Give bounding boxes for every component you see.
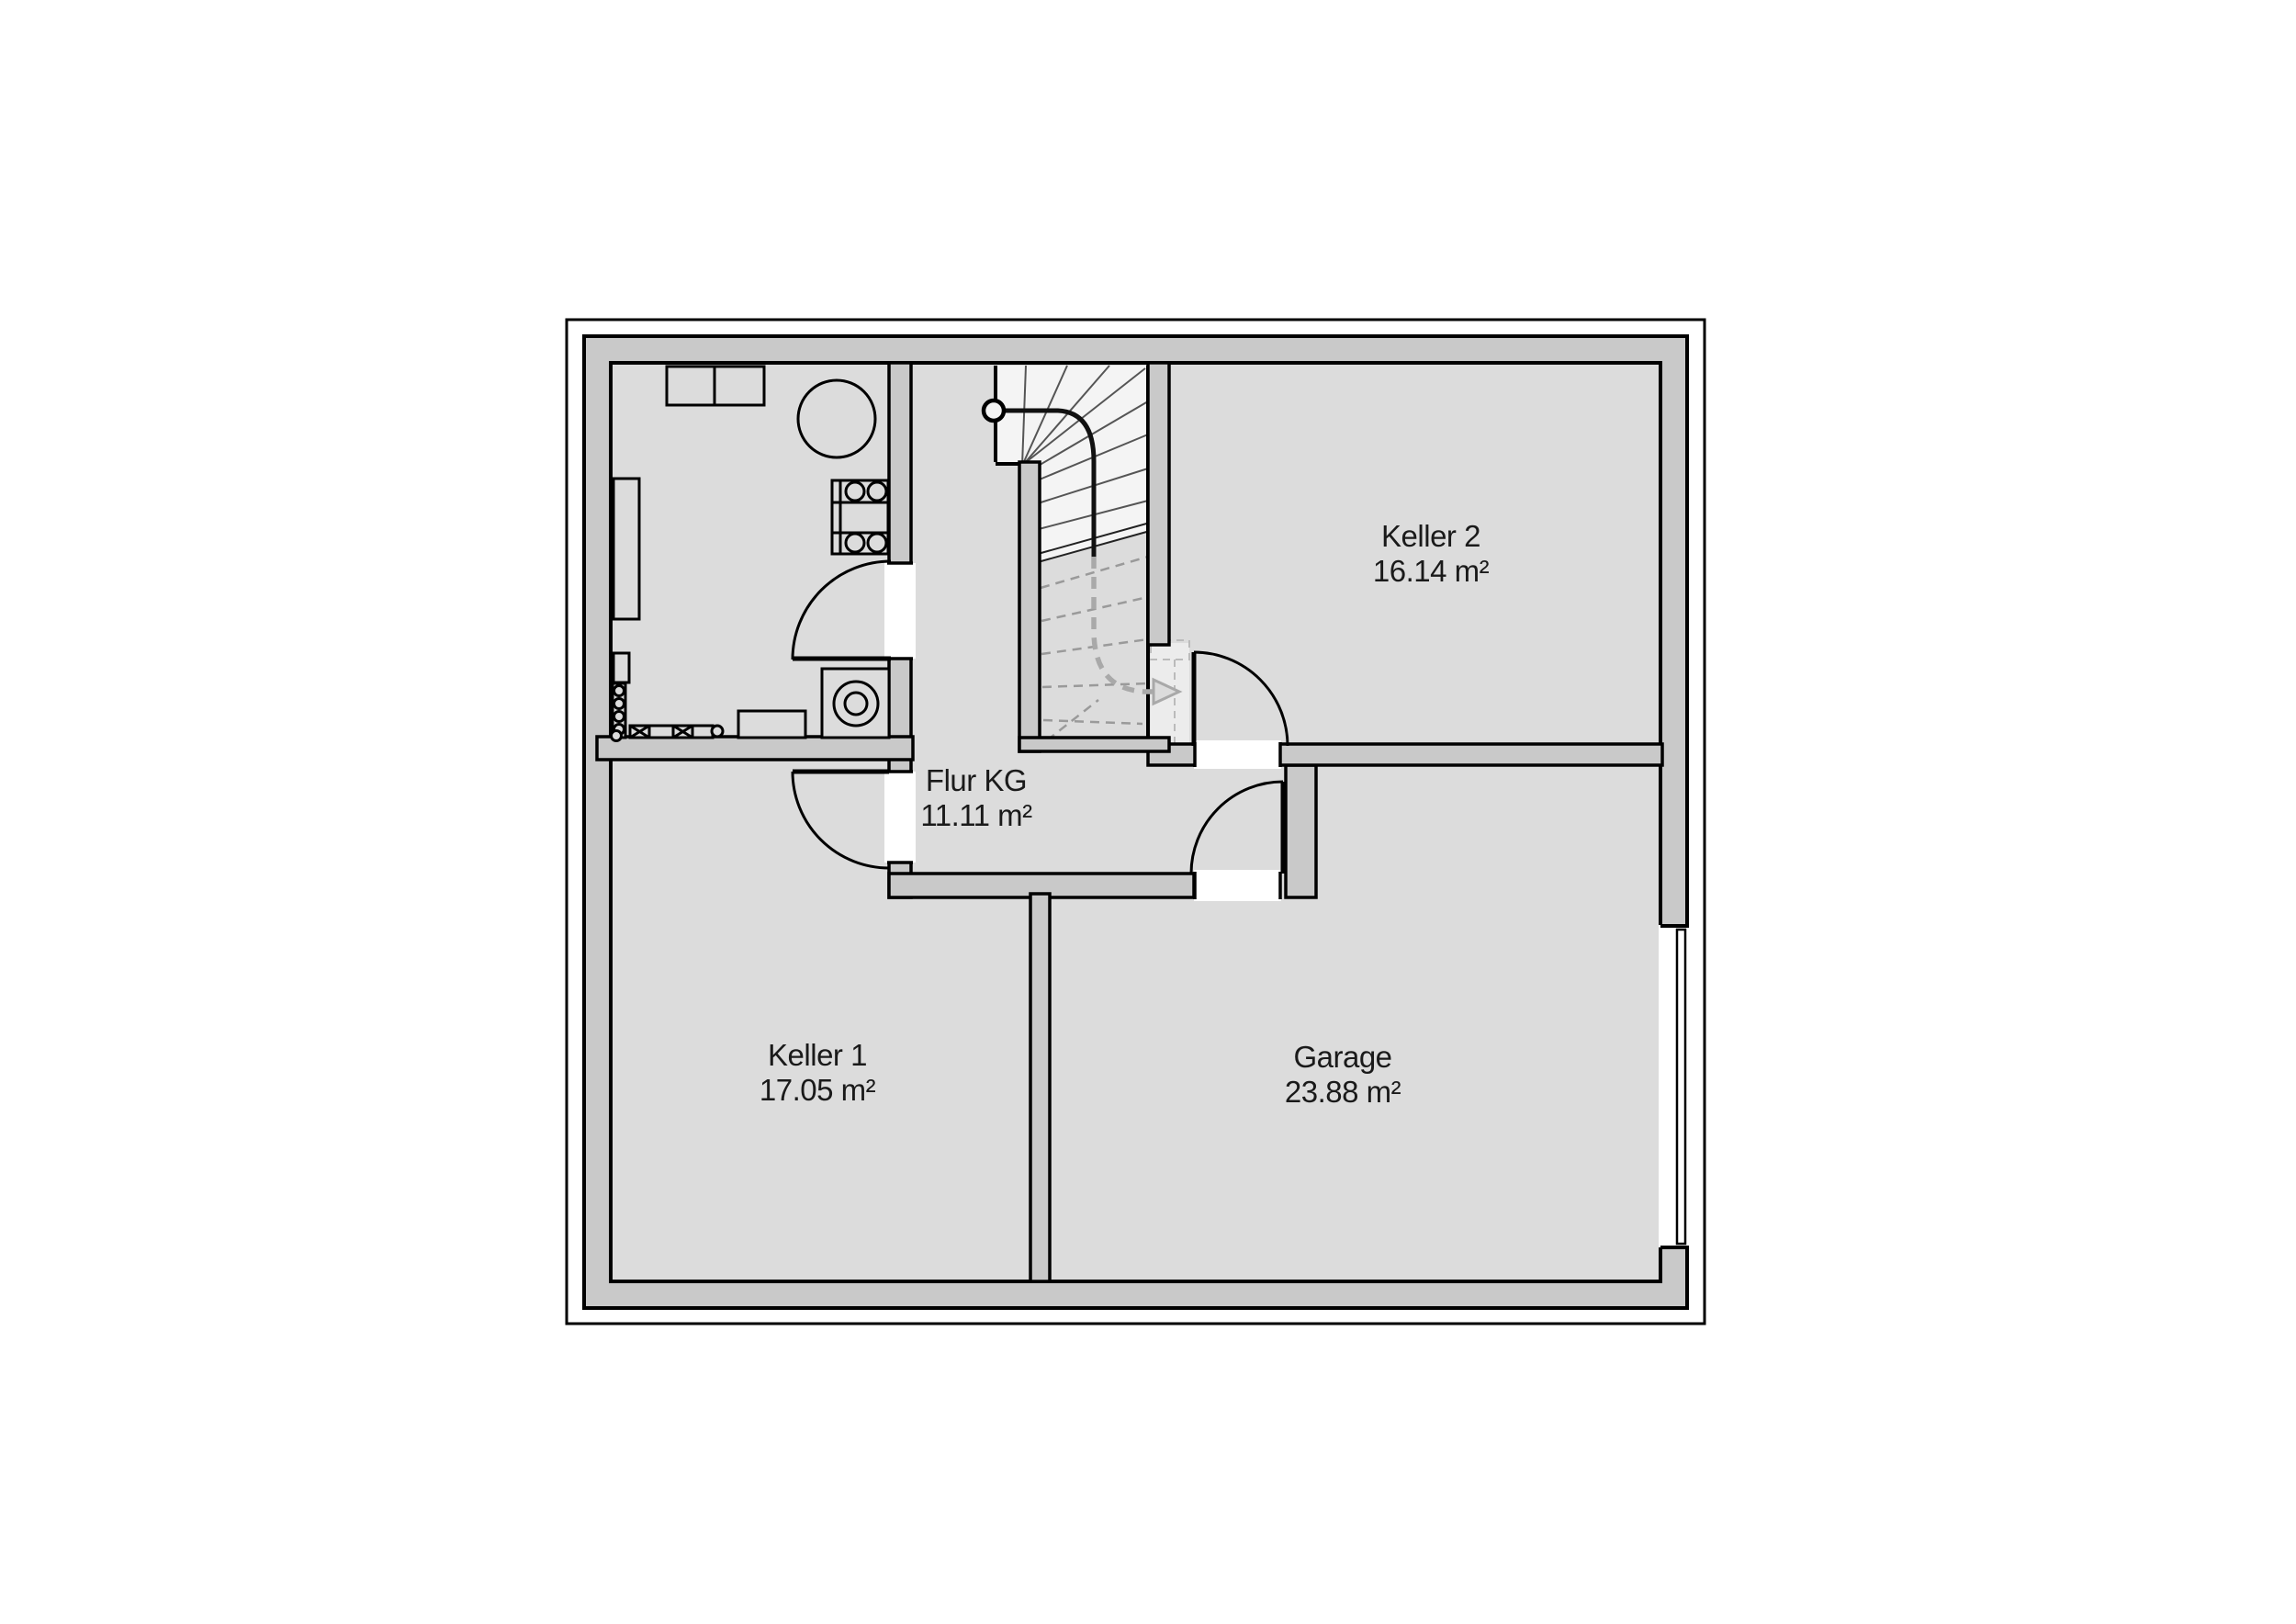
walk-line-start-icon: [984, 400, 1004, 421]
room-area-garage: 23.88 m²: [1285, 1075, 1401, 1109]
room-area-flur-kg: 11.11 m²: [920, 798, 1032, 832]
room-label-flur-kg: Flur KG: [926, 763, 1027, 797]
wall-stair-keller2: [1148, 363, 1169, 645]
tall-shelf: [613, 479, 639, 619]
room-area-keller2: 16.14 m²: [1373, 554, 1490, 588]
room-label-keller2: Keller 2: [1381, 519, 1480, 553]
wall-keller1-garage: [1030, 894, 1050, 1281]
wall-stair-south: [1019, 738, 1169, 751]
room-label-keller1: Keller 1: [768, 1038, 867, 1072]
room-area-keller1: 17.05 m²: [760, 1073, 876, 1107]
garage-door-panel: [1677, 930, 1685, 1244]
wall-corridor-east: [1286, 765, 1316, 897]
wall-utility-south: [597, 737, 913, 760]
workbench-row: [630, 726, 723, 738]
floor-plan-svg: Keller 2 16.14 m² Flur KG 11.11 m² Kelle…: [0, 0, 2296, 1624]
pipe-radiator: [612, 683, 626, 741]
small-cabinet: [613, 653, 629, 682]
bench: [738, 711, 805, 738]
wall-stair-west: [1019, 462, 1040, 751]
round-tank: [798, 380, 875, 457]
room-label-garage: Garage: [1293, 1040, 1391, 1074]
washing-machine: [822, 669, 889, 738]
hotplate-unit: [832, 480, 888, 554]
floor-plan-page: Keller 2 16.14 m² Flur KG 11.11 m² Kelle…: [0, 0, 2296, 1624]
